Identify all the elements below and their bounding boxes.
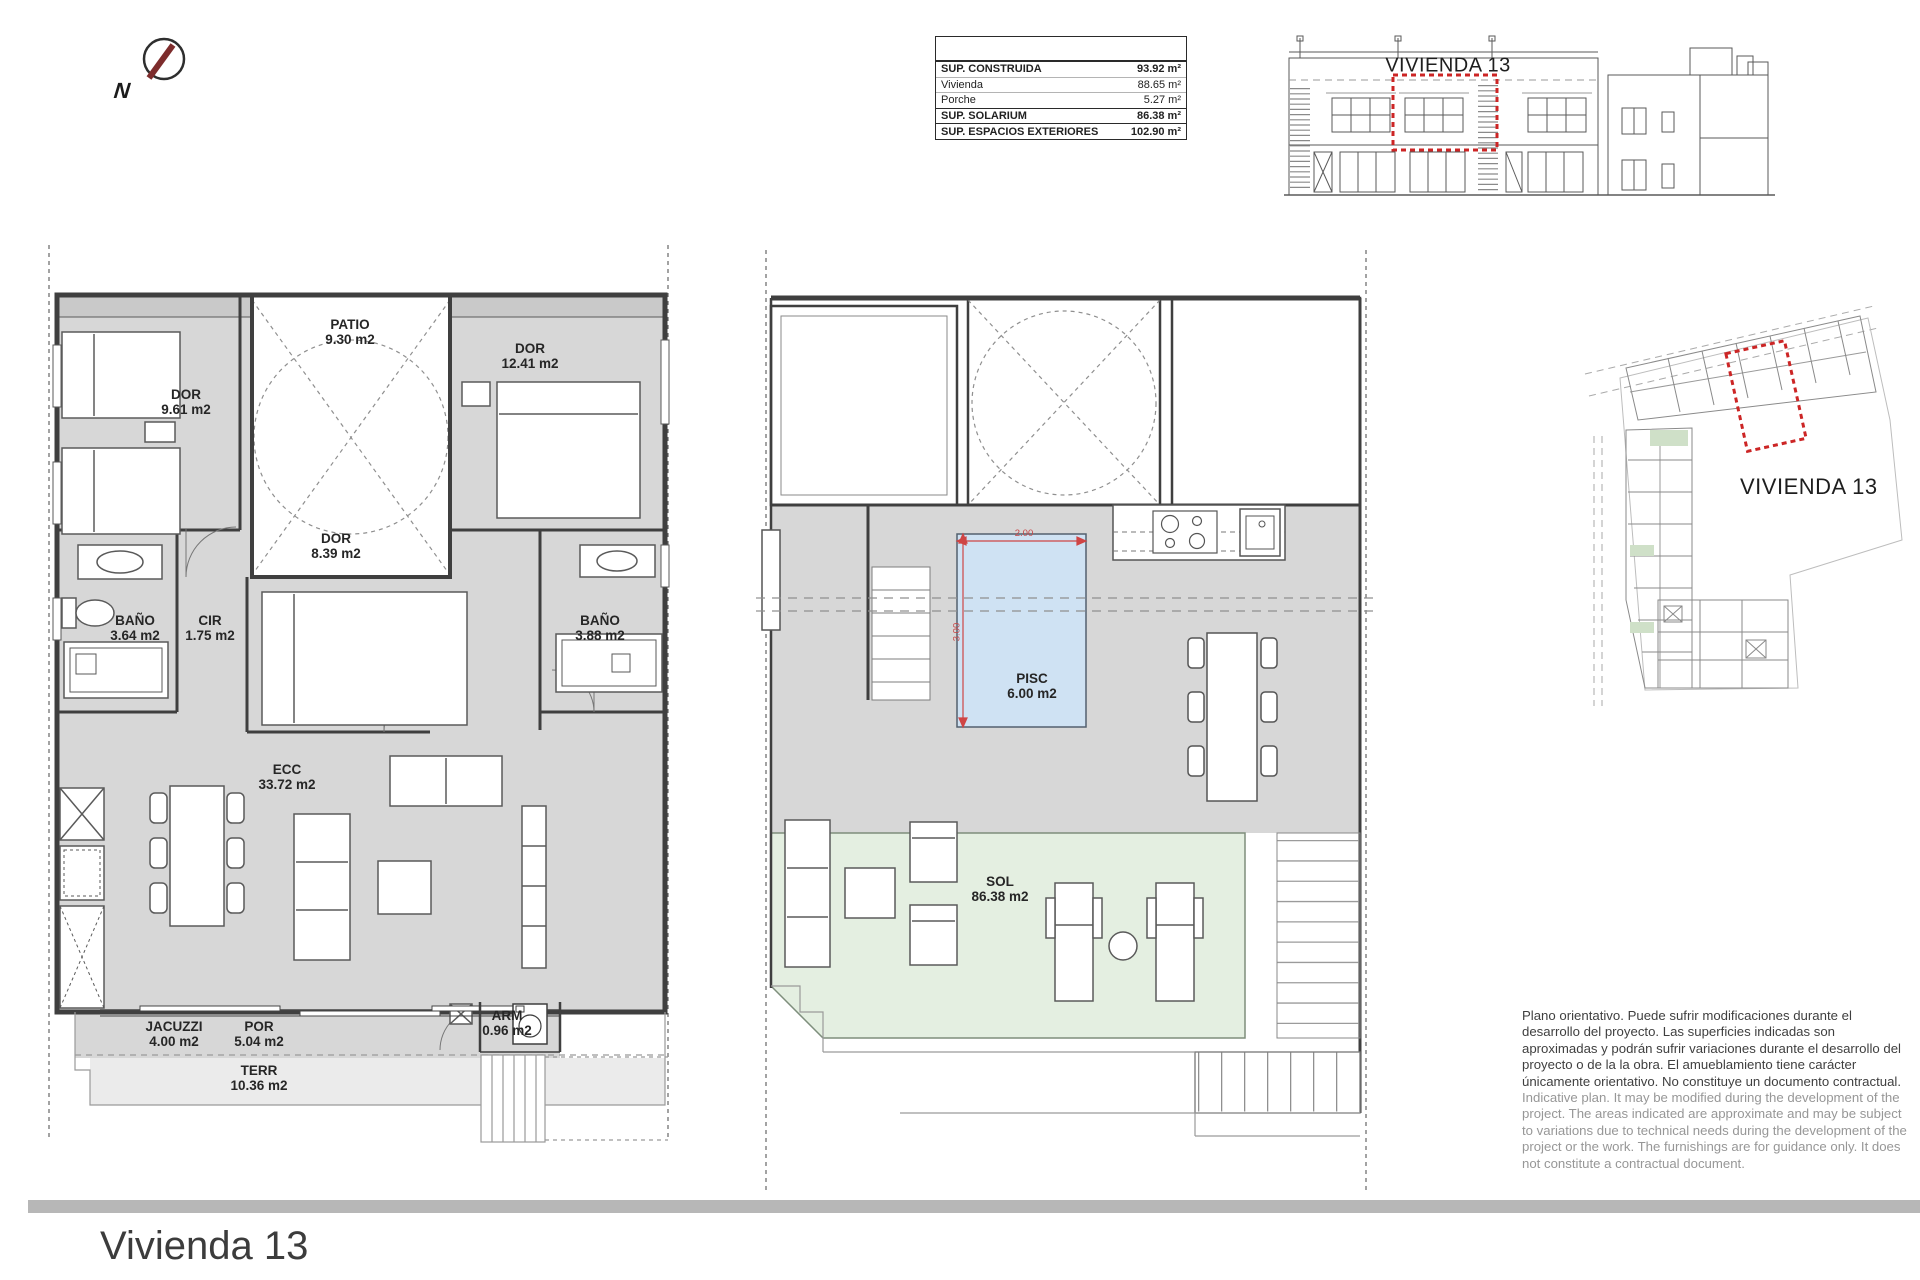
table-row: Porche 5.27 m² xyxy=(936,92,1186,108)
site-unit-label: VIVIENDA 13 xyxy=(1740,474,1878,500)
pool-width-dimension: 2.00 xyxy=(1015,528,1034,539)
room-label-arm: ARM0.96 m2 xyxy=(482,1008,532,1038)
north-arrow-icon xyxy=(144,39,184,79)
elevation-unit-label: VIVIENDA 13 xyxy=(1385,55,1511,78)
room-label-jacuzzi: JACUZZI4.00 m2 xyxy=(146,1019,203,1049)
disclaimer-spanish: Plano orientativo. Puede sufrir modifica… xyxy=(1522,1008,1912,1090)
room-label-sol: SOL86.38 m2 xyxy=(971,874,1028,904)
table-row: SUP. CONSTRUIDA 93.92 m² xyxy=(936,61,1186,77)
room-label-terr: TERR10.36 m2 xyxy=(230,1063,287,1093)
areas-table-header xyxy=(936,37,1186,61)
table-row: SUP. SOLARIUM 86.38 m² xyxy=(936,108,1186,124)
site-unit-highlight xyxy=(1726,341,1806,452)
elevation-unit-highlight xyxy=(1393,75,1497,150)
areas-table: SUP. CONSTRUIDA 93.92 m² Vivienda 88.65 … xyxy=(935,36,1187,140)
footer-bar xyxy=(28,1200,1920,1213)
room-label-dor3: DOR8.39 m2 xyxy=(311,531,361,561)
room-label-dor2: DOR12.41 m2 xyxy=(501,341,558,371)
floor-plan-linework xyxy=(49,245,669,1142)
pool-height-dimension: 3.00 xyxy=(952,623,963,642)
north-label: N xyxy=(113,78,132,104)
sheet-title: Vivienda 13 xyxy=(100,1224,308,1269)
room-label-bano2: BAÑO3.88 m2 xyxy=(575,613,625,643)
room-label-dor1: DOR9.61 m2 xyxy=(161,387,211,417)
disclaimer: Plano orientativo. Puede sufrir modifica… xyxy=(1522,1008,1912,1172)
disclaimer-english: Indicative plan. It may be modified duri… xyxy=(1522,1090,1912,1172)
table-row: Vivienda 88.65 m² xyxy=(936,77,1186,93)
plan-sheet: N SUP. CONSTRUIDA 93.92 m² Vivienda 88.6… xyxy=(0,0,1920,1280)
solarium-plan-linework xyxy=(756,250,1374,1190)
table-row: SUP. ESPACIOS EXTERIORES 102.90 m² xyxy=(936,123,1186,139)
room-label-ecc: ECC33.72 m2 xyxy=(258,762,315,792)
room-label-patio: PATIO9.30 m2 xyxy=(325,317,375,347)
site-plan-linework xyxy=(1585,306,1902,706)
room-label-pisc: PISC6.00 m2 xyxy=(1007,671,1057,701)
elevation-drawing xyxy=(1284,36,1775,195)
room-label-cir: CIR1.75 m2 xyxy=(185,613,235,643)
room-label-bano1: BAÑO3.64 m2 xyxy=(110,613,160,643)
room-label-por: POR5.04 m2 xyxy=(234,1019,284,1049)
